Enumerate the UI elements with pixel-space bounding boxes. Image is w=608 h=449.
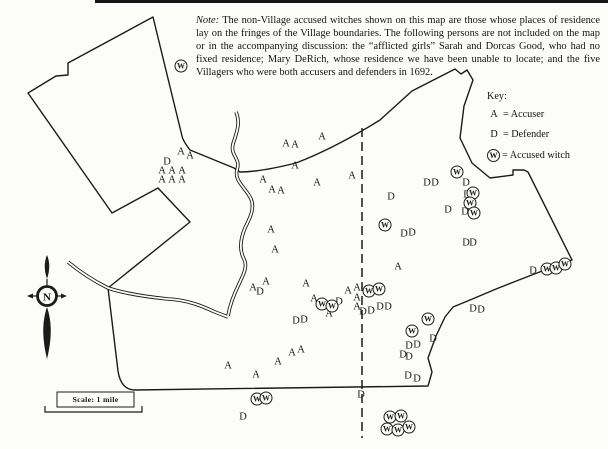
river xyxy=(68,112,252,317)
accused-witch-marker: W xyxy=(379,219,392,232)
key-symbol: D xyxy=(487,129,501,140)
accused-witch-marker: W xyxy=(451,166,464,179)
accused-witch-marker: W xyxy=(373,283,386,296)
accuser-marker: A xyxy=(313,178,321,189)
accuser-marker: A xyxy=(277,186,285,197)
accused-witch-marker: W xyxy=(406,325,419,338)
key-item-label: = Accused witch xyxy=(502,150,570,161)
defender-marker: D xyxy=(163,157,171,168)
defender-marker: D xyxy=(413,340,421,351)
accused-witch-marker: W xyxy=(468,207,481,220)
accuser-marker: A xyxy=(178,175,186,186)
compass-south-blade xyxy=(43,307,51,359)
note-text: Note: The non-Village accused witches sh… xyxy=(196,15,600,79)
accuser-marker: A xyxy=(318,132,326,143)
key-items: A= AccuserD= DefenderW= Accused witch xyxy=(487,109,570,163)
defender-marker: D xyxy=(387,192,395,203)
defender-marker: D xyxy=(413,374,421,385)
defender-marker: D xyxy=(529,266,537,277)
key-item: D= Defender xyxy=(487,129,570,143)
scale-label: Scale: 1 mile xyxy=(57,392,134,407)
defender-marker: D xyxy=(469,238,477,249)
defender-marker: D xyxy=(408,228,416,239)
accuser-marker: A xyxy=(168,175,176,186)
key-item-label: = Defender xyxy=(503,129,549,140)
accuser-marker: A xyxy=(297,345,305,356)
key-item: A= Accuser xyxy=(487,109,570,123)
map-key: Key: A= AccuserD= DefenderW= Accused wit… xyxy=(487,91,570,169)
accuser-marker: A xyxy=(302,279,310,290)
defender-marker: D xyxy=(431,178,439,189)
compass-north-label: N xyxy=(43,292,51,304)
defender-marker: D xyxy=(404,371,412,382)
defender-marker: D xyxy=(292,316,300,327)
defender-marker: D xyxy=(444,205,452,216)
defender-marker: D xyxy=(469,304,477,315)
accused-witch-marker: W xyxy=(326,300,339,313)
accuser-marker: A xyxy=(282,139,290,150)
accuser-marker: A xyxy=(252,370,260,381)
defender-marker: D xyxy=(429,334,437,345)
key-item: W= Accused witch xyxy=(487,149,570,163)
defender-marker: D xyxy=(300,315,308,326)
accuser-marker: A xyxy=(288,348,296,359)
note-body: The non-Village accused witches shown on… xyxy=(196,15,600,78)
defender-marker: D xyxy=(367,306,375,317)
key-item-label: = Accuser xyxy=(503,109,544,120)
defender-marker: D xyxy=(239,412,247,423)
accuser-marker: A xyxy=(348,171,356,182)
accuser-marker: A xyxy=(268,185,276,196)
accuser-marker: A xyxy=(271,245,279,256)
defender-marker: D xyxy=(423,178,431,189)
key-symbol: A xyxy=(487,109,501,120)
compass-top-ornament xyxy=(45,255,50,279)
defender-marker: D xyxy=(376,302,384,313)
accused-witch-marker: W xyxy=(559,258,572,271)
defender-marker: D xyxy=(384,302,392,313)
accused-witch-symbol: W xyxy=(487,149,500,162)
accuser-marker: A xyxy=(177,147,185,158)
accused-witch-marker: W xyxy=(175,60,188,73)
accused-witch-marker: W xyxy=(260,392,273,405)
accuser-marker: A xyxy=(274,357,282,368)
accuser-marker: A xyxy=(186,151,194,162)
compass-rose: N xyxy=(27,255,67,359)
key-title: Key: xyxy=(487,91,570,102)
accuser-marker: A xyxy=(394,262,402,273)
accuser-marker: A xyxy=(291,140,299,151)
accuser-marker: A xyxy=(291,161,299,172)
accuser-marker: A xyxy=(259,175,267,186)
defender-marker: D xyxy=(400,229,408,240)
defender-marker: D xyxy=(477,305,485,316)
accused-witch-marker: W xyxy=(403,421,416,434)
accuser-marker: A xyxy=(224,361,232,372)
defender-marker: D xyxy=(357,390,365,401)
defender-marker: D xyxy=(359,307,367,318)
defender-marker: D xyxy=(256,287,264,298)
accuser-marker: A xyxy=(158,175,166,186)
accuser-marker: A xyxy=(344,286,352,297)
salem-village-map: N Note: The non-Village accused witches … xyxy=(0,0,608,449)
scan-artifact-line xyxy=(95,0,608,3)
note-label: Note: xyxy=(196,15,219,26)
accused-witch-marker: W xyxy=(422,313,435,326)
defender-marker: D xyxy=(405,352,413,363)
accuser-marker: A xyxy=(267,225,275,236)
